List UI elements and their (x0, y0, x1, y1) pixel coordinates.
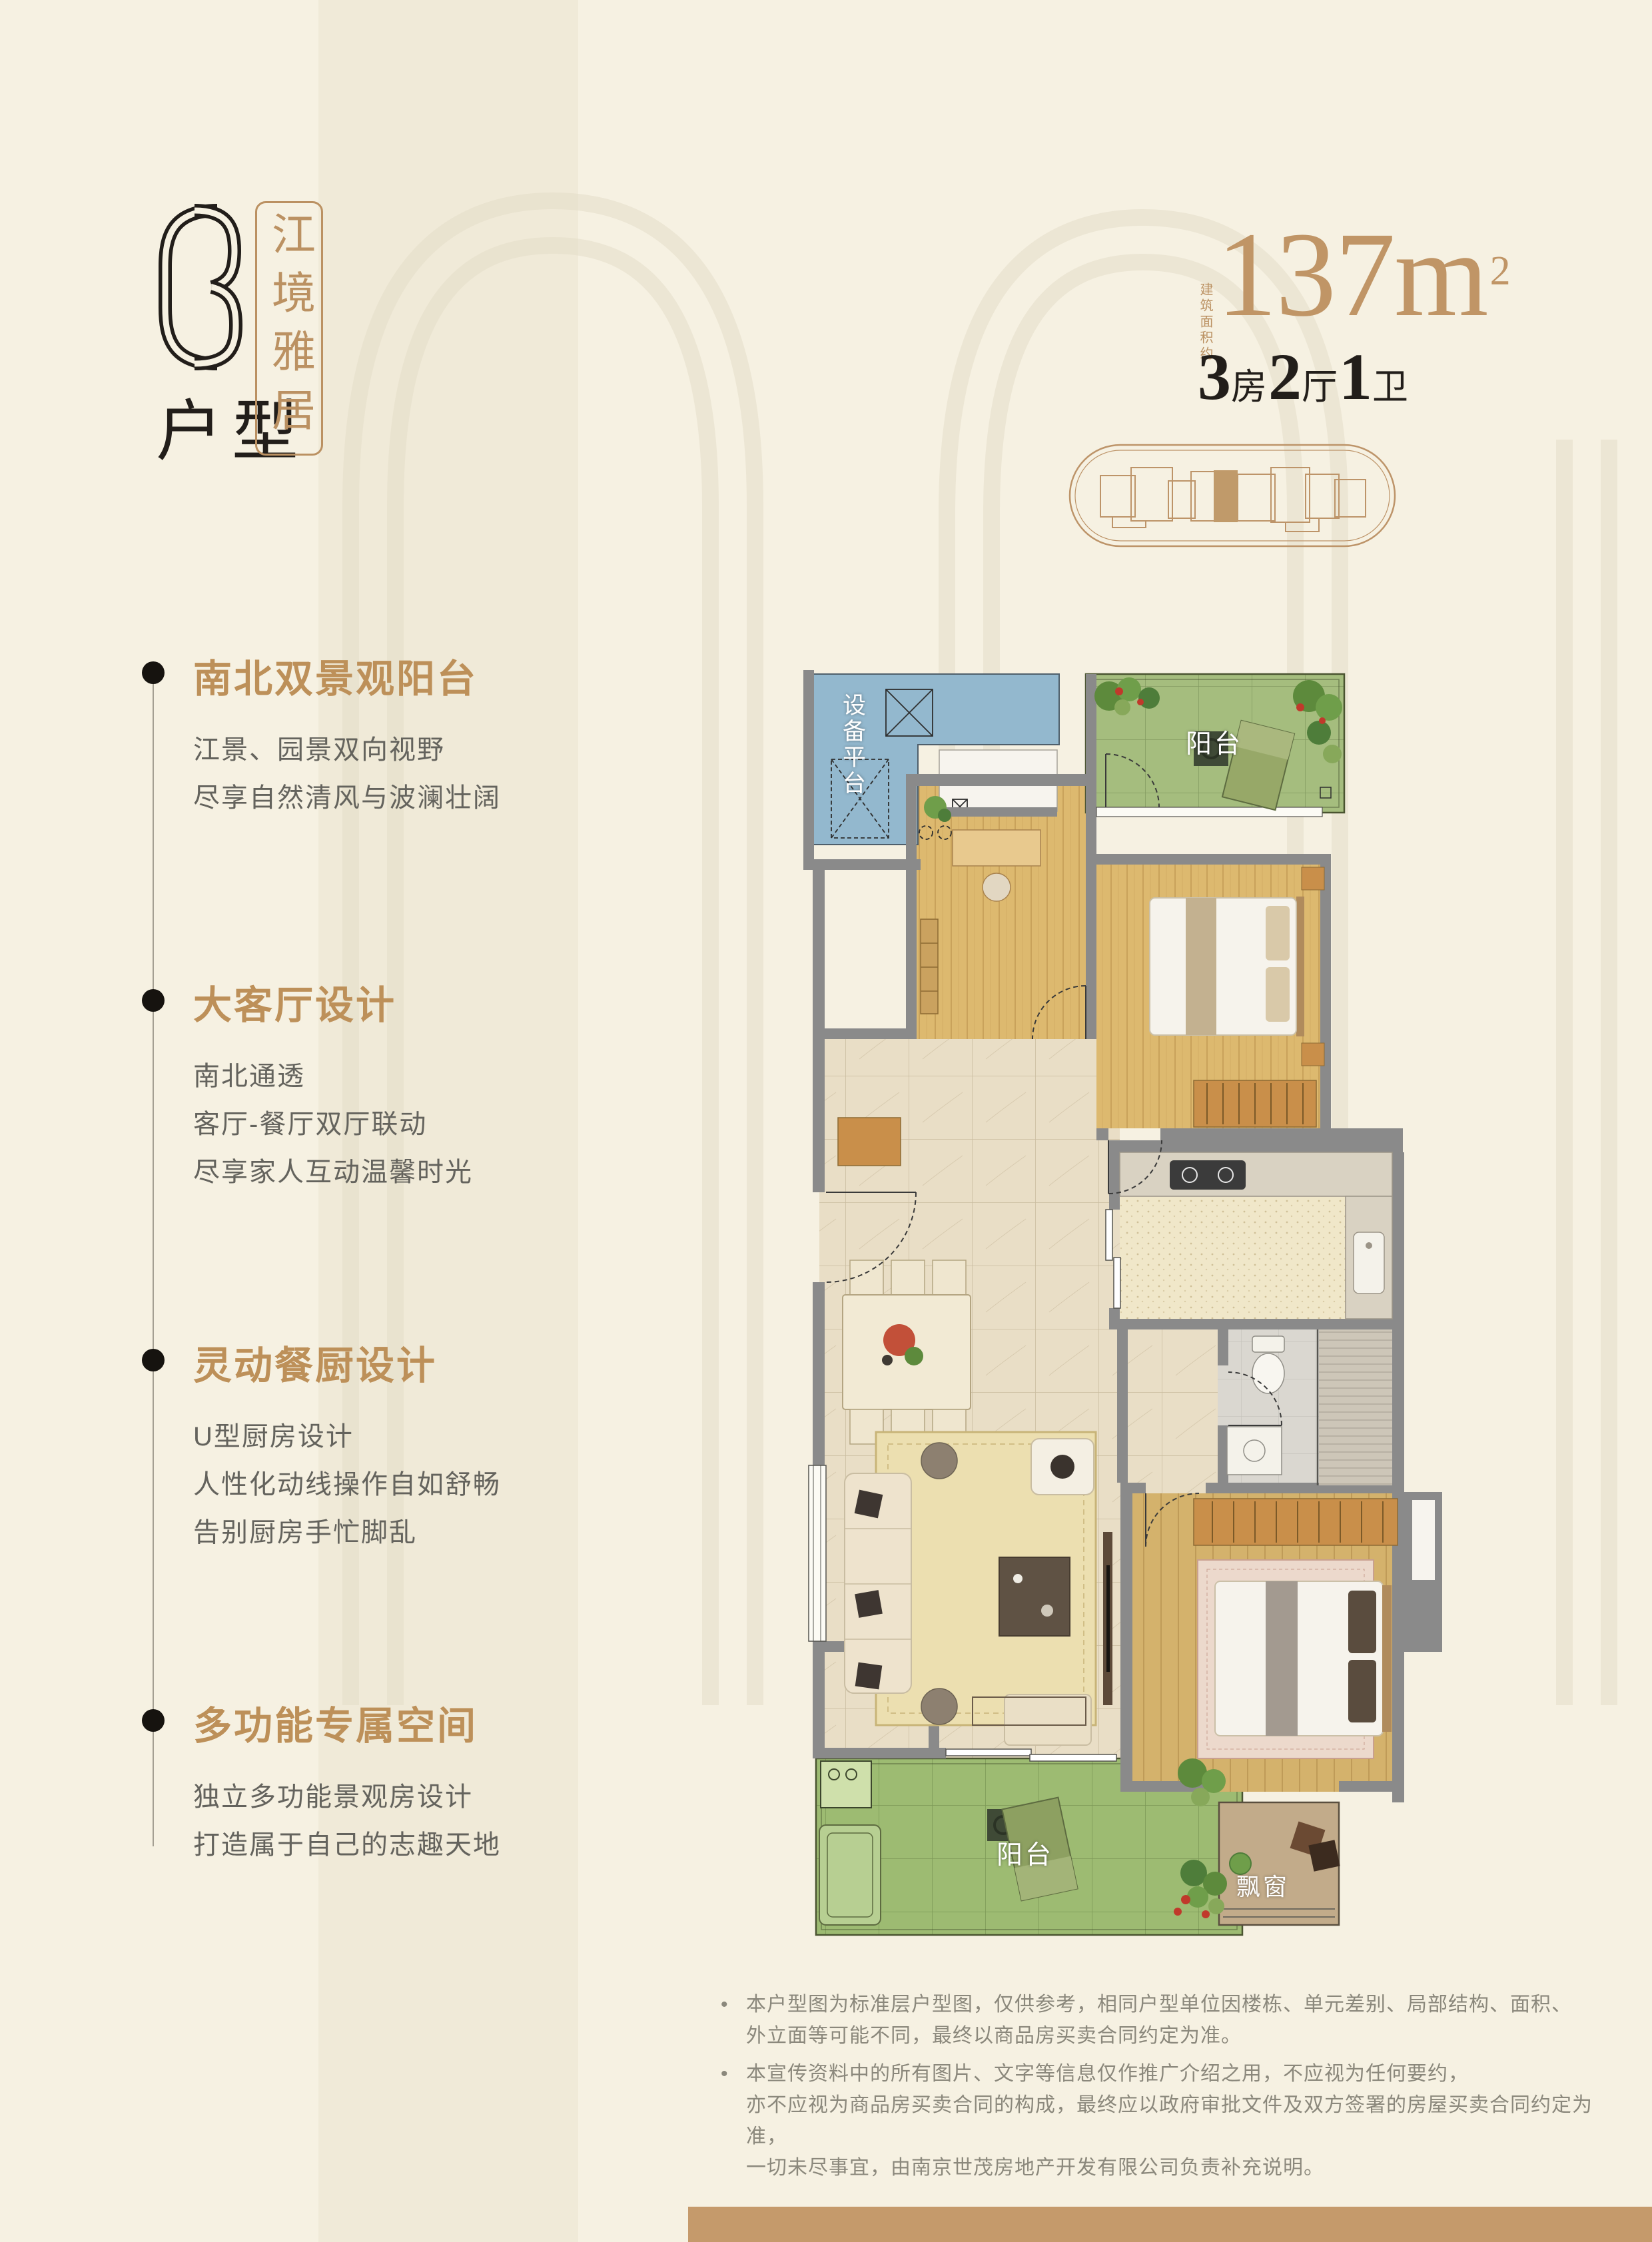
feature-line: 南北通透 (193, 1052, 699, 1100)
feature-dot-1 (142, 661, 165, 684)
building-locator (1066, 434, 1399, 558)
tagline-text: 江境雅居 (257, 211, 321, 446)
feature-line: 尽享自然清风与波澜壮阔 (193, 774, 699, 822)
feature-multiroom: 多功能专属空间 独立多功能景观房设计 打造属于自己的志趣天地 (193, 1694, 699, 1869)
master-furniture (1194, 1499, 1398, 1758)
feature-dot-3 (142, 1349, 165, 1371)
dining-furniture (843, 1260, 971, 1444)
rooms-label: 房 (1231, 367, 1268, 407)
highlighted-unit (1214, 470, 1238, 522)
disclaimer-line: 外立面等可能不同，最终以商品房买卖合同约定为准。 (746, 2020, 1627, 2052)
feature-dot-4 (142, 1709, 165, 1732)
poster-page: 户型 江境雅居 建筑面积约 137m2 3房2厅1卫 南北双景观阳台 (0, 0, 1652, 2242)
feature-timeline (153, 674, 154, 1846)
feature-title: 大客厅设计 (193, 974, 699, 1030)
study-floor (917, 786, 1086, 1039)
disclaimer-line: 本户型图为标准层户型图，仅供参考，相同户型单位因楼栋、单元差别、局部结构、面积、 (746, 1989, 1627, 2020)
label-balcony-south: 阳台 (997, 1834, 1054, 1872)
feature-line: 人性化动线操作自如舒畅 (193, 1461, 699, 1509)
tagline-box: 江境雅居 (255, 201, 323, 456)
unit-config: 3房2厅1卫 (1198, 338, 1410, 415)
feature-line: 打造属于自己的志趣天地 (193, 1821, 699, 1869)
label-bay-window: 飘窗 (1236, 1868, 1290, 1902)
entry-cabinet (838, 1118, 901, 1166)
feature-line: 告别厨房手忙脚乱 (193, 1509, 699, 1557)
feature-title: 灵动餐厨设计 (193, 1334, 699, 1390)
feature-line: 尽享家人互动温馨时光 (193, 1148, 699, 1196)
feature-line: 客厅-餐厅双厅联动 (193, 1100, 699, 1148)
floor-plan (719, 633, 1452, 2005)
duct (1412, 1500, 1435, 1580)
label-equipment-platform: 设备平台 (835, 693, 869, 797)
unit-code-logo (151, 200, 250, 374)
area-unit: m (1394, 208, 1487, 342)
label-balcony-north: 阳台 (1186, 723, 1243, 761)
feature-line: 独立多功能景观房设计 (193, 1773, 699, 1821)
area-value: 137m2 (1216, 214, 1507, 336)
feature-title: 多功能专属空间 (193, 1694, 699, 1750)
baths-label: 卫 (1372, 367, 1410, 407)
feature-line: U型厨房设计 (193, 1413, 699, 1461)
disclaimer-line: 一切未尽事宜，由南京世茂房地产开发有限公司负责补充说明。 (746, 2152, 1627, 2183)
feature-kitchen: 灵动餐厨设计 U型厨房设计 人性化动线操作自如舒畅 告别厨房手忙脚乱 (193, 1334, 699, 1557)
halls-label: 厅 (1302, 367, 1339, 407)
feature-balcony: 南北双景观阳台 江景、园景双向视野 尽享自然清风与波澜壮阔 (193, 647, 699, 822)
disclaimer-item: 本户型图为标准层户型图，仅供参考，相同户型单位因楼栋、单元差别、局部结构、面积、… (721, 1989, 1627, 2052)
feature-title: 南北双景观阳台 (193, 647, 699, 703)
feature-livingroom: 大客厅设计 南北通透 客厅-餐厅双厅联动 尽享家人互动温馨时光 (193, 974, 699, 1196)
disclaimer: 本户型图为标准层户型图，仅供参考，相同户型单位因楼栋、单元差别、局部结构、面积、… (721, 1989, 1627, 2190)
bottom-accent-bar (688, 2207, 1652, 2242)
disclaimer-line: 亦不应视为商品房买卖合同的构成，最终应以政府审批文件及双方签署的房屋买卖合同约定… (746, 2089, 1627, 2152)
baths-count: 1 (1339, 340, 1372, 414)
feature-line: 江景、园景双向视野 (193, 726, 699, 774)
feature-dot-2 (142, 989, 165, 1012)
halls-count: 2 (1268, 340, 1302, 414)
living-furniture (845, 1432, 1112, 1745)
area-sup: 2 (1490, 248, 1509, 294)
area-number: 137 (1216, 208, 1394, 342)
rooms-count: 3 (1198, 340, 1231, 414)
corridor-floor (1120, 1319, 1218, 1493)
disclaimer-item: 本宣传资料中的所有图片、文字等信息仅作推广介绍之用，不应视为任何要约， 亦不应视… (721, 2058, 1627, 2183)
disclaimer-line: 本宣传资料中的所有图片、文字等信息仅作推广介绍之用，不应视为任何要约， (746, 2058, 1627, 2089)
